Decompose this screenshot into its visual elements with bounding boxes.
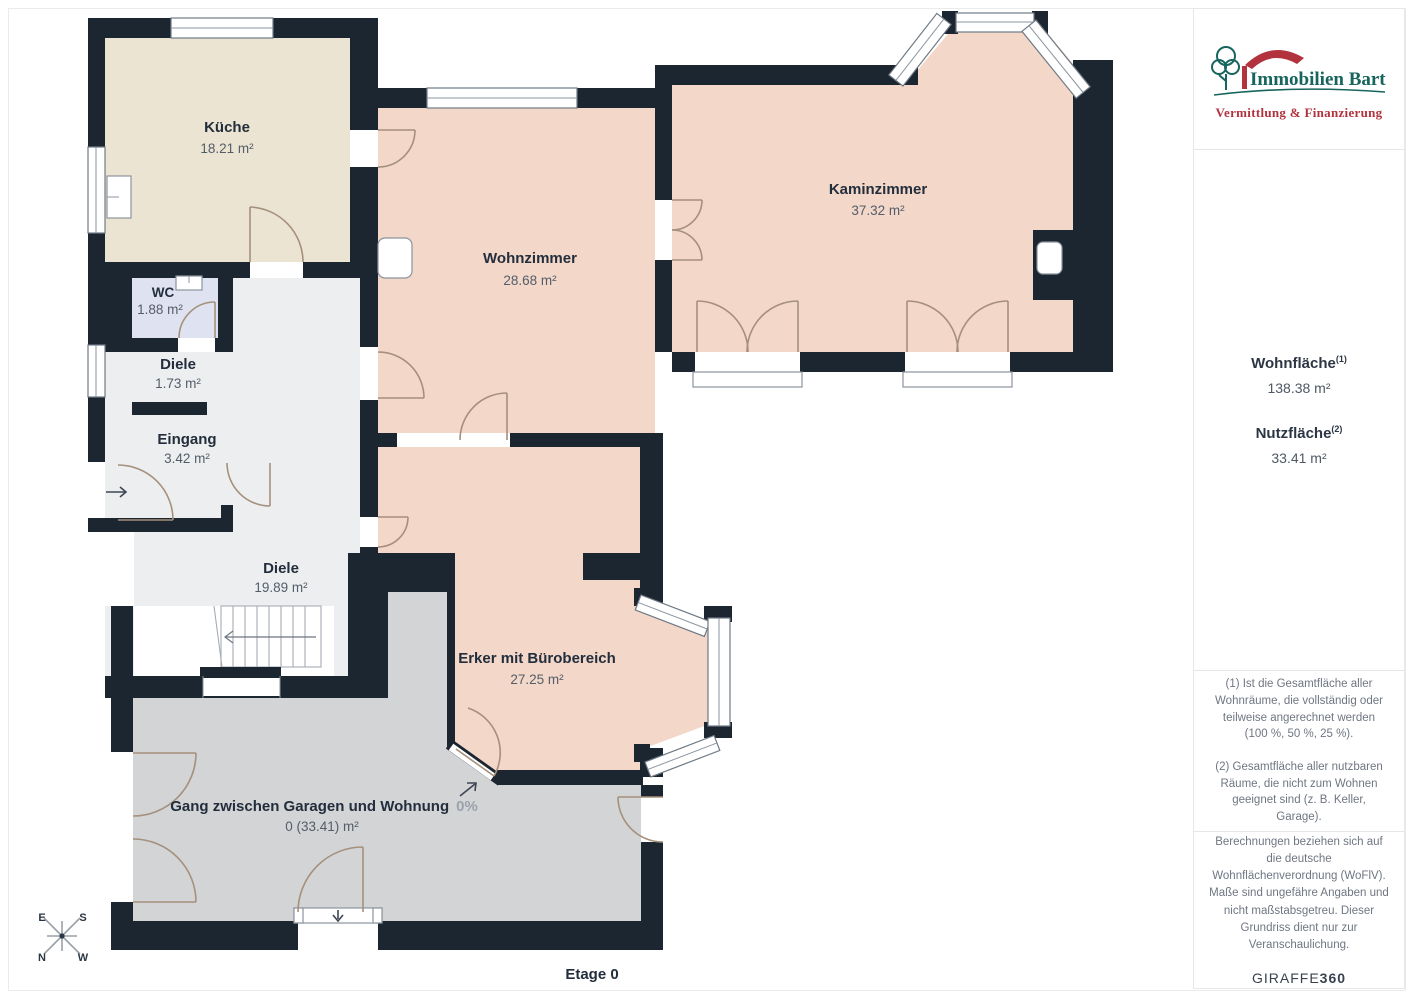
- window-kueche-left: [88, 147, 105, 233]
- footnote-1: (1) Ist die Gesamtfläche aller Wohnräume…: [1210, 676, 1388, 743]
- wc-area: 1.88 m²: [137, 302, 183, 317]
- erker-area: 27.25 m²: [510, 672, 564, 687]
- logo-subtitle: Vermittlung & Finanzierung: [1216, 105, 1383, 121]
- gang-label-text: Gang zwischen Garagen und Wohnung: [170, 798, 449, 815]
- wohnflaeche-block: Wohnfläche(1) 138.38 m²: [1251, 354, 1347, 396]
- wohnzimmer-area: 28.68 m²: [503, 273, 557, 288]
- footnote-2: (2) Gesamtfläche aller nutzbaren Räume, …: [1210, 759, 1388, 826]
- nutzflaeche-label: Nutzfläche(2): [1256, 424, 1343, 442]
- exit-threshold: [294, 908, 382, 923]
- kaminzimmer-label: Kaminzimmer: [829, 181, 928, 198]
- giraffe360-logo: GIRAFFE360: [1252, 970, 1346, 986]
- gang-corridor-fill: [388, 592, 447, 698]
- kaminzimmer-area: 37.32 m²: [851, 203, 905, 218]
- erker-label: Erker mit Bürobereich: [458, 650, 616, 667]
- wohnflaeche-footnote-ref: (1): [1336, 354, 1347, 364]
- kaminzimmer-niche: [1037, 242, 1062, 274]
- nutzflaeche-block: Nutzfläche(2) 33.41 m²: [1256, 424, 1343, 466]
- window-hall-left: [88, 345, 105, 397]
- diele-label: Diele: [263, 560, 299, 577]
- wohnzimmer-label: Wohnzimmer: [483, 250, 577, 267]
- gang-area: 0 (33.41) m²: [285, 819, 359, 834]
- logo-underline: [1214, 89, 1385, 95]
- stair-void: [134, 606, 334, 676]
- window-kueche-top: [171, 18, 273, 38]
- disclaimer-section: Berechnungen beziehen sich auf die deuts…: [1194, 832, 1404, 988]
- floorplan-drawing: Küche 18.21 m² WC 1.88 m² Diele 1.73 m² …: [0, 0, 1190, 1000]
- compass-icon: E S N W: [38, 912, 89, 964]
- logo-i-mark: [1242, 66, 1247, 89]
- nutzflaeche-footnote-ref: (2): [1331, 424, 1342, 434]
- logo-roof-icon: [1245, 50, 1304, 69]
- exterior-step: [903, 372, 1012, 387]
- compass-south: S: [79, 912, 86, 924]
- eingang-label: Eingang: [157, 431, 216, 448]
- floor-label: Etage 0: [565, 966, 618, 983]
- info-sidebar: Immobilien Bart Vermittlung & Finanzieru…: [1193, 8, 1405, 989]
- kueche-area: 18.21 m²: [200, 141, 254, 156]
- gang-label: Gang zwischen Garagen und Wohnung0%: [170, 798, 478, 815]
- gang-under-erker-fill: [455, 785, 641, 925]
- kueche-label: Küche: [204, 119, 250, 136]
- footnotes-section: (1) Ist die Gesamtfläche aller Wohnräume…: [1194, 671, 1404, 832]
- area-summary: Wohnfläche(1) 138.38 m² Nutzfläche(2) 33…: [1194, 150, 1404, 671]
- floorplan-page: Küche 18.21 m² WC 1.88 m² Diele 1.73 m² …: [0, 0, 1414, 1000]
- diele-klein-area: 1.73 m²: [155, 376, 201, 391]
- eingang-area: 3.42 m²: [164, 451, 210, 466]
- wohnflaeche-value: 138.38 m²: [1251, 380, 1347, 396]
- logo-tree-icon: [1212, 47, 1239, 90]
- wohnflaeche-label: Wohnfläche(1): [1251, 354, 1347, 372]
- compass-east: E: [38, 912, 45, 924]
- wc-label: WC: [152, 285, 175, 300]
- compass-north: N: [38, 952, 46, 964]
- diele-klein-label: Diele: [160, 356, 196, 373]
- logo-title: Immobilien Bart: [1250, 69, 1386, 90]
- window-wohnzimmer-top: [427, 88, 577, 108]
- compass-west: W: [78, 952, 89, 964]
- diele-area: 19.89 m²: [254, 580, 308, 595]
- exterior-step: [693, 372, 802, 387]
- agency-logo-image: Immobilien Bart: [1209, 37, 1389, 103]
- disclaimer-text: Berechnungen beziehen sich auf die deuts…: [1208, 834, 1390, 955]
- wohnzimmer-niche: [378, 238, 412, 278]
- wohnzimmer-fill: [378, 107, 655, 433]
- gang-percent: 0%: [456, 798, 478, 815]
- agency-logo: Immobilien Bart Vermittlung & Finanzieru…: [1194, 9, 1404, 150]
- exterior-notch: [88, 532, 134, 606]
- nutzflaeche-value: 33.41 m²: [1256, 450, 1343, 466]
